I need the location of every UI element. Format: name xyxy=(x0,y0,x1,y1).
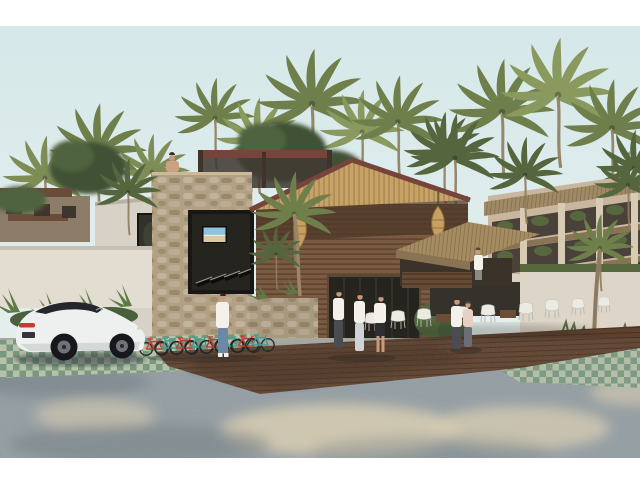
rendering-image xyxy=(0,0,640,480)
low-table xyxy=(436,314,452,322)
letterbox-top xyxy=(0,0,640,26)
scene-canvas xyxy=(0,0,640,480)
low-table xyxy=(500,310,516,318)
car-headlight xyxy=(137,326,141,330)
tower-window xyxy=(188,210,254,294)
car-taillight xyxy=(19,323,35,328)
letterbox-bottom xyxy=(0,458,640,480)
front-low-wall xyxy=(0,246,152,308)
license-plate xyxy=(22,332,35,338)
tv-screen xyxy=(202,226,227,243)
